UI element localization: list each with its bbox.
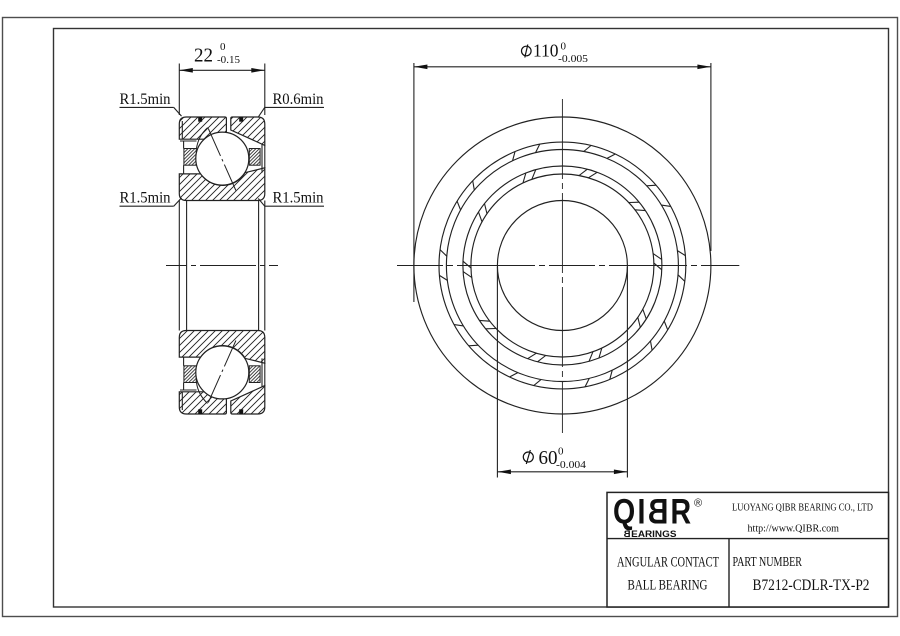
- svg-text:B: B: [648, 492, 669, 531]
- svg-text:B: B: [624, 529, 631, 540]
- svg-text:http://www.QIBR.com: http://www.QIBR.com: [748, 524, 840, 535]
- svg-text:BALL BEARING: BALL BEARING: [628, 578, 708, 594]
- svg-text:R: R: [670, 492, 691, 531]
- svg-text:I: I: [637, 492, 645, 531]
- svg-text:R0.6min: R0.6min: [273, 91, 324, 108]
- svg-text:110: 110: [533, 41, 559, 61]
- svg-text:EARINGS: EARINGS: [631, 529, 676, 540]
- svg-text:22: 22: [194, 45, 213, 67]
- svg-text:-0.005: -0.005: [558, 53, 589, 65]
- svg-text:®: ®: [694, 498, 702, 510]
- svg-text:LUOYANG QIBR BEARING CO., LTD: LUOYANG QIBR BEARING CO., LTD: [732, 503, 873, 514]
- svg-text:Q: Q: [613, 492, 635, 531]
- svg-text:0: 0: [220, 41, 226, 53]
- svg-text:B7212-CDLR-TX-P2: B7212-CDLR-TX-P2: [753, 577, 870, 594]
- svg-text:0: 0: [558, 446, 564, 458]
- svg-text:-0.15: -0.15: [217, 54, 240, 66]
- svg-text:60: 60: [539, 447, 558, 469]
- svg-text:R1.5min: R1.5min: [120, 91, 171, 108]
- svg-text:ANGULAR CONTACT: ANGULAR CONTACT: [617, 555, 719, 571]
- svg-text:R1.5min: R1.5min: [120, 190, 171, 207]
- svg-text:0: 0: [561, 41, 567, 53]
- svg-text:PART NUMBER: PART NUMBER: [733, 554, 803, 569]
- svg-text:R1.5min: R1.5min: [273, 190, 324, 207]
- svg-text:-0.004: -0.004: [556, 459, 587, 471]
